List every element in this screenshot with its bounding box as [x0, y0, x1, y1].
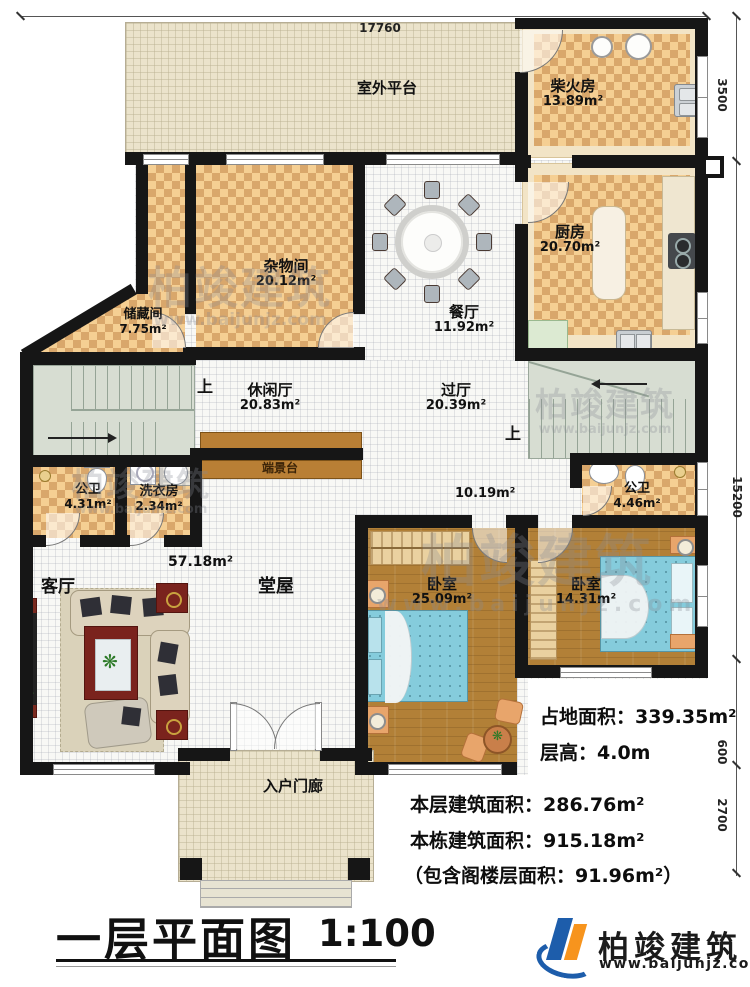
stairs-left-treads-upper — [71, 366, 194, 409]
porch-floor — [178, 750, 374, 882]
room-area: 4.46m² — [582, 497, 692, 511]
dim-right-lower-b: 2700 — [715, 785, 729, 845]
storage-room-floor-a — [148, 165, 185, 295]
side-table-medallion — [166, 592, 182, 608]
room-area: 2.34m² — [104, 500, 214, 514]
wall-lamp — [674, 466, 686, 478]
wardrobe-rail — [371, 547, 469, 549]
stairs-up-label-right: 上 — [505, 420, 521, 444]
nightstand — [670, 536, 696, 554]
room-label-firewood: 柴火房 13.89m² — [518, 78, 628, 110]
stairs-right-treads — [529, 399, 696, 458]
wall-kitchen-left-a — [515, 168, 528, 182]
brand-website: www.baijunjz.com — [599, 956, 750, 972]
info-land-area: 占地面积：339.35m² — [540, 702, 736, 729]
dining-chair — [424, 285, 440, 303]
sundry-room-floor — [196, 165, 353, 347]
dining-table-center — [424, 234, 442, 252]
dining-table — [395, 205, 469, 279]
room-name: 端景台 — [225, 462, 335, 476]
wall-console — [196, 448, 363, 460]
room-name: 公卫 — [582, 482, 692, 497]
room-name: 杂物间 — [231, 258, 341, 275]
sofa-pillow — [80, 597, 102, 618]
flue-box — [702, 156, 724, 178]
room-name: 储藏间 — [88, 308, 198, 323]
room-label-outdoor-platform: 室外平台 — [332, 80, 442, 97]
brand-logo-icon — [536, 916, 592, 976]
dim-top-width: 17760 — [330, 21, 430, 35]
kitchen-cabinet — [528, 320, 568, 351]
wall-firewood-top — [515, 18, 707, 29]
bed-pillow — [368, 617, 382, 653]
wall-bathR-top — [570, 453, 697, 465]
wall-lamp — [39, 470, 51, 482]
room-label-storage: 储藏间 7.75m² — [88, 308, 198, 337]
floorplan-sheet: ❋ ❧ ❋ — [0, 0, 750, 987]
chaise-lounge — [83, 696, 152, 749]
room-label-dining: 餐厅 11.92m² — [409, 304, 519, 336]
window-right-firewood — [697, 56, 708, 138]
wall-under-sundry — [183, 347, 365, 360]
room-name: 卧室 — [387, 576, 497, 593]
stairs-right — [528, 358, 697, 459]
room-label-console: 端景台 — [225, 462, 335, 476]
corridor-area-label: 10.19m² — [455, 486, 515, 501]
stairs-right-arrowhead-icon — [591, 379, 600, 389]
room-label-porch: 入户门廊 — [238, 778, 348, 795]
porch-corner-left — [180, 858, 202, 880]
sofa-pillow — [157, 642, 178, 665]
kitchen-stove — [668, 233, 696, 269]
room-area: 20.39m² — [401, 399, 511, 414]
window-bedroom1-bottom — [388, 764, 502, 775]
logo-swoosh — [533, 936, 599, 984]
wall-bedroom-divider — [515, 528, 528, 678]
wall-bath-bottom-a — [20, 535, 46, 547]
room-name: 入户门廊 — [238, 778, 348, 795]
room-area: 14.31m² — [531, 593, 641, 608]
plant-icon: ❋ — [102, 651, 118, 673]
outdoor-platform-floor — [125, 22, 523, 155]
room-label-living: 客厅 — [18, 578, 98, 598]
dim-line-top — [20, 16, 707, 17]
stairs-left — [33, 365, 195, 459]
wall-storage-left — [136, 152, 148, 294]
wall-sundry-right — [353, 152, 365, 314]
plant-icon: ❋ — [492, 729, 503, 744]
room-name: 休闲厅 — [215, 382, 325, 399]
dining-chair — [476, 233, 492, 251]
wood-stove-burner — [591, 36, 613, 58]
wall-sundry-left — [185, 152, 196, 314]
info-this-floor-area: 本层建筑面积：286.76m² — [410, 790, 644, 817]
dim-line-right — [736, 16, 737, 876]
room-name: 卧室 — [531, 576, 641, 593]
room-name: 室外平台 — [332, 80, 442, 97]
hall-area-label: 57.18m² — [168, 554, 233, 570]
window-top-3 — [386, 154, 500, 165]
room-label-bedroom2: 卧室 14.31m² — [531, 576, 641, 608]
wall-porch-stub-right — [320, 748, 372, 761]
room-area: 20.83m² — [215, 399, 325, 414]
wall-firewood-kitchen-b — [572, 155, 707, 168]
bed-blanket — [385, 611, 412, 703]
window-right-bedroom2 — [697, 565, 708, 627]
room-name: 洗衣房 — [104, 485, 214, 500]
room-label-laundry: 洗衣房 2.34m² — [104, 485, 214, 514]
bed-pillow — [368, 659, 382, 695]
info-floor-height: 层高：4.0m — [540, 738, 650, 765]
window-top-1 — [143, 154, 189, 165]
room-name: 堂屋 — [236, 577, 316, 598]
wardrobe — [370, 531, 470, 565]
window-bedroom2-bottom — [560, 667, 652, 678]
stairs-left-arrowhead-icon — [108, 433, 117, 443]
title-underline-thin — [56, 966, 396, 967]
wall-stairsL-bottom — [20, 455, 196, 467]
stove-burner — [675, 238, 691, 254]
side-table — [156, 710, 188, 740]
sink-basin — [636, 334, 651, 349]
window-right-bath — [697, 462, 708, 516]
room-label-leisure: 休闲厅 20.83m² — [215, 382, 325, 414]
nightstand — [670, 634, 696, 649]
room-area: 25.09m² — [387, 593, 497, 608]
side-table — [156, 583, 188, 613]
info-attic-note: （包含阁楼层面积：91.96m²） — [404, 861, 682, 888]
wall-kitchen-bottom — [515, 348, 707, 361]
side-table-medallion — [166, 719, 182, 735]
bedroom-round-table: ❋ — [483, 725, 512, 754]
room-name: 餐厅 — [409, 304, 519, 321]
room-label-hallway: 过厅 20.39m² — [401, 382, 511, 414]
bed-pillow — [671, 563, 693, 603]
stairs-left-treads-lower — [71, 422, 163, 456]
dim-right-lower-a: 600 — [715, 722, 729, 782]
stairs-right-landing-line — [528, 361, 649, 397]
dim-right-main: 15200 — [730, 467, 744, 527]
room-label-bath-right: 公卫 4.46m² — [582, 482, 692, 511]
bed-double — [364, 610, 468, 702]
stairs-right-arrow — [599, 383, 647, 385]
kitchen-sink — [616, 330, 652, 350]
sofa-pillow — [158, 674, 178, 696]
room-area: 13.89m² — [518, 95, 628, 110]
stairs-up-label-left: 上 — [197, 373, 213, 397]
scale-label: 1:100 — [318, 912, 436, 955]
room-area: 20.70m² — [515, 241, 625, 256]
room-label-kitchen: 厨房 20.70m² — [515, 224, 625, 256]
sink-basin — [620, 334, 635, 349]
stairs-left-arrow — [48, 437, 110, 439]
wall-bedrooms-top-a — [355, 515, 472, 528]
dim-right-top: 3500 — [715, 65, 729, 125]
wall-bedrooms-top-c — [572, 515, 707, 528]
sofa-pillow — [110, 595, 132, 615]
room-name: 客厅 — [18, 578, 98, 598]
room-label-main-hall: 堂屋 — [236, 577, 316, 598]
window-living-bottom — [53, 764, 155, 775]
wall-left-outer — [20, 352, 33, 775]
stairs-left-divider — [71, 409, 194, 411]
wall-bathR-left — [570, 453, 582, 488]
window-right-kitchen — [697, 292, 708, 344]
title-underline-thick — [56, 959, 396, 962]
room-name: 厨房 — [515, 224, 625, 241]
dining-chair — [372, 233, 388, 251]
room-area: 11.92m² — [409, 321, 519, 336]
window-top-2 — [226, 154, 324, 165]
room-label-sundry: 杂物间 20.12m² — [231, 258, 341, 290]
sofa-pillow — [121, 706, 141, 726]
room-area: 20.12m² — [231, 275, 341, 290]
room-name: 过厅 — [401, 382, 511, 399]
dining-chair — [424, 181, 440, 199]
room-area: 7.75m² — [88, 323, 198, 337]
wall-porch-stub-left — [178, 748, 230, 761]
wall-storage-bottom — [20, 352, 196, 365]
wall-bath-bottom-c — [164, 535, 202, 547]
wood-stove-burner — [625, 33, 652, 60]
wall-bedrooms-top-b — [506, 515, 538, 528]
wall-bedroom1-left — [355, 515, 368, 775]
coffee-table: ❋ — [84, 626, 138, 700]
dresser — [530, 560, 557, 660]
info-building-area: 本栋建筑面积：915.18m² — [410, 826, 644, 853]
room-name: 柴火房 — [518, 78, 628, 95]
wall-bath-bottom-b — [80, 535, 130, 547]
room-label-bedroom1: 卧室 25.09m² — [387, 576, 497, 608]
flue-inner — [706, 160, 720, 174]
stove-burner — [675, 253, 691, 269]
porch-corner-right — [348, 858, 370, 880]
